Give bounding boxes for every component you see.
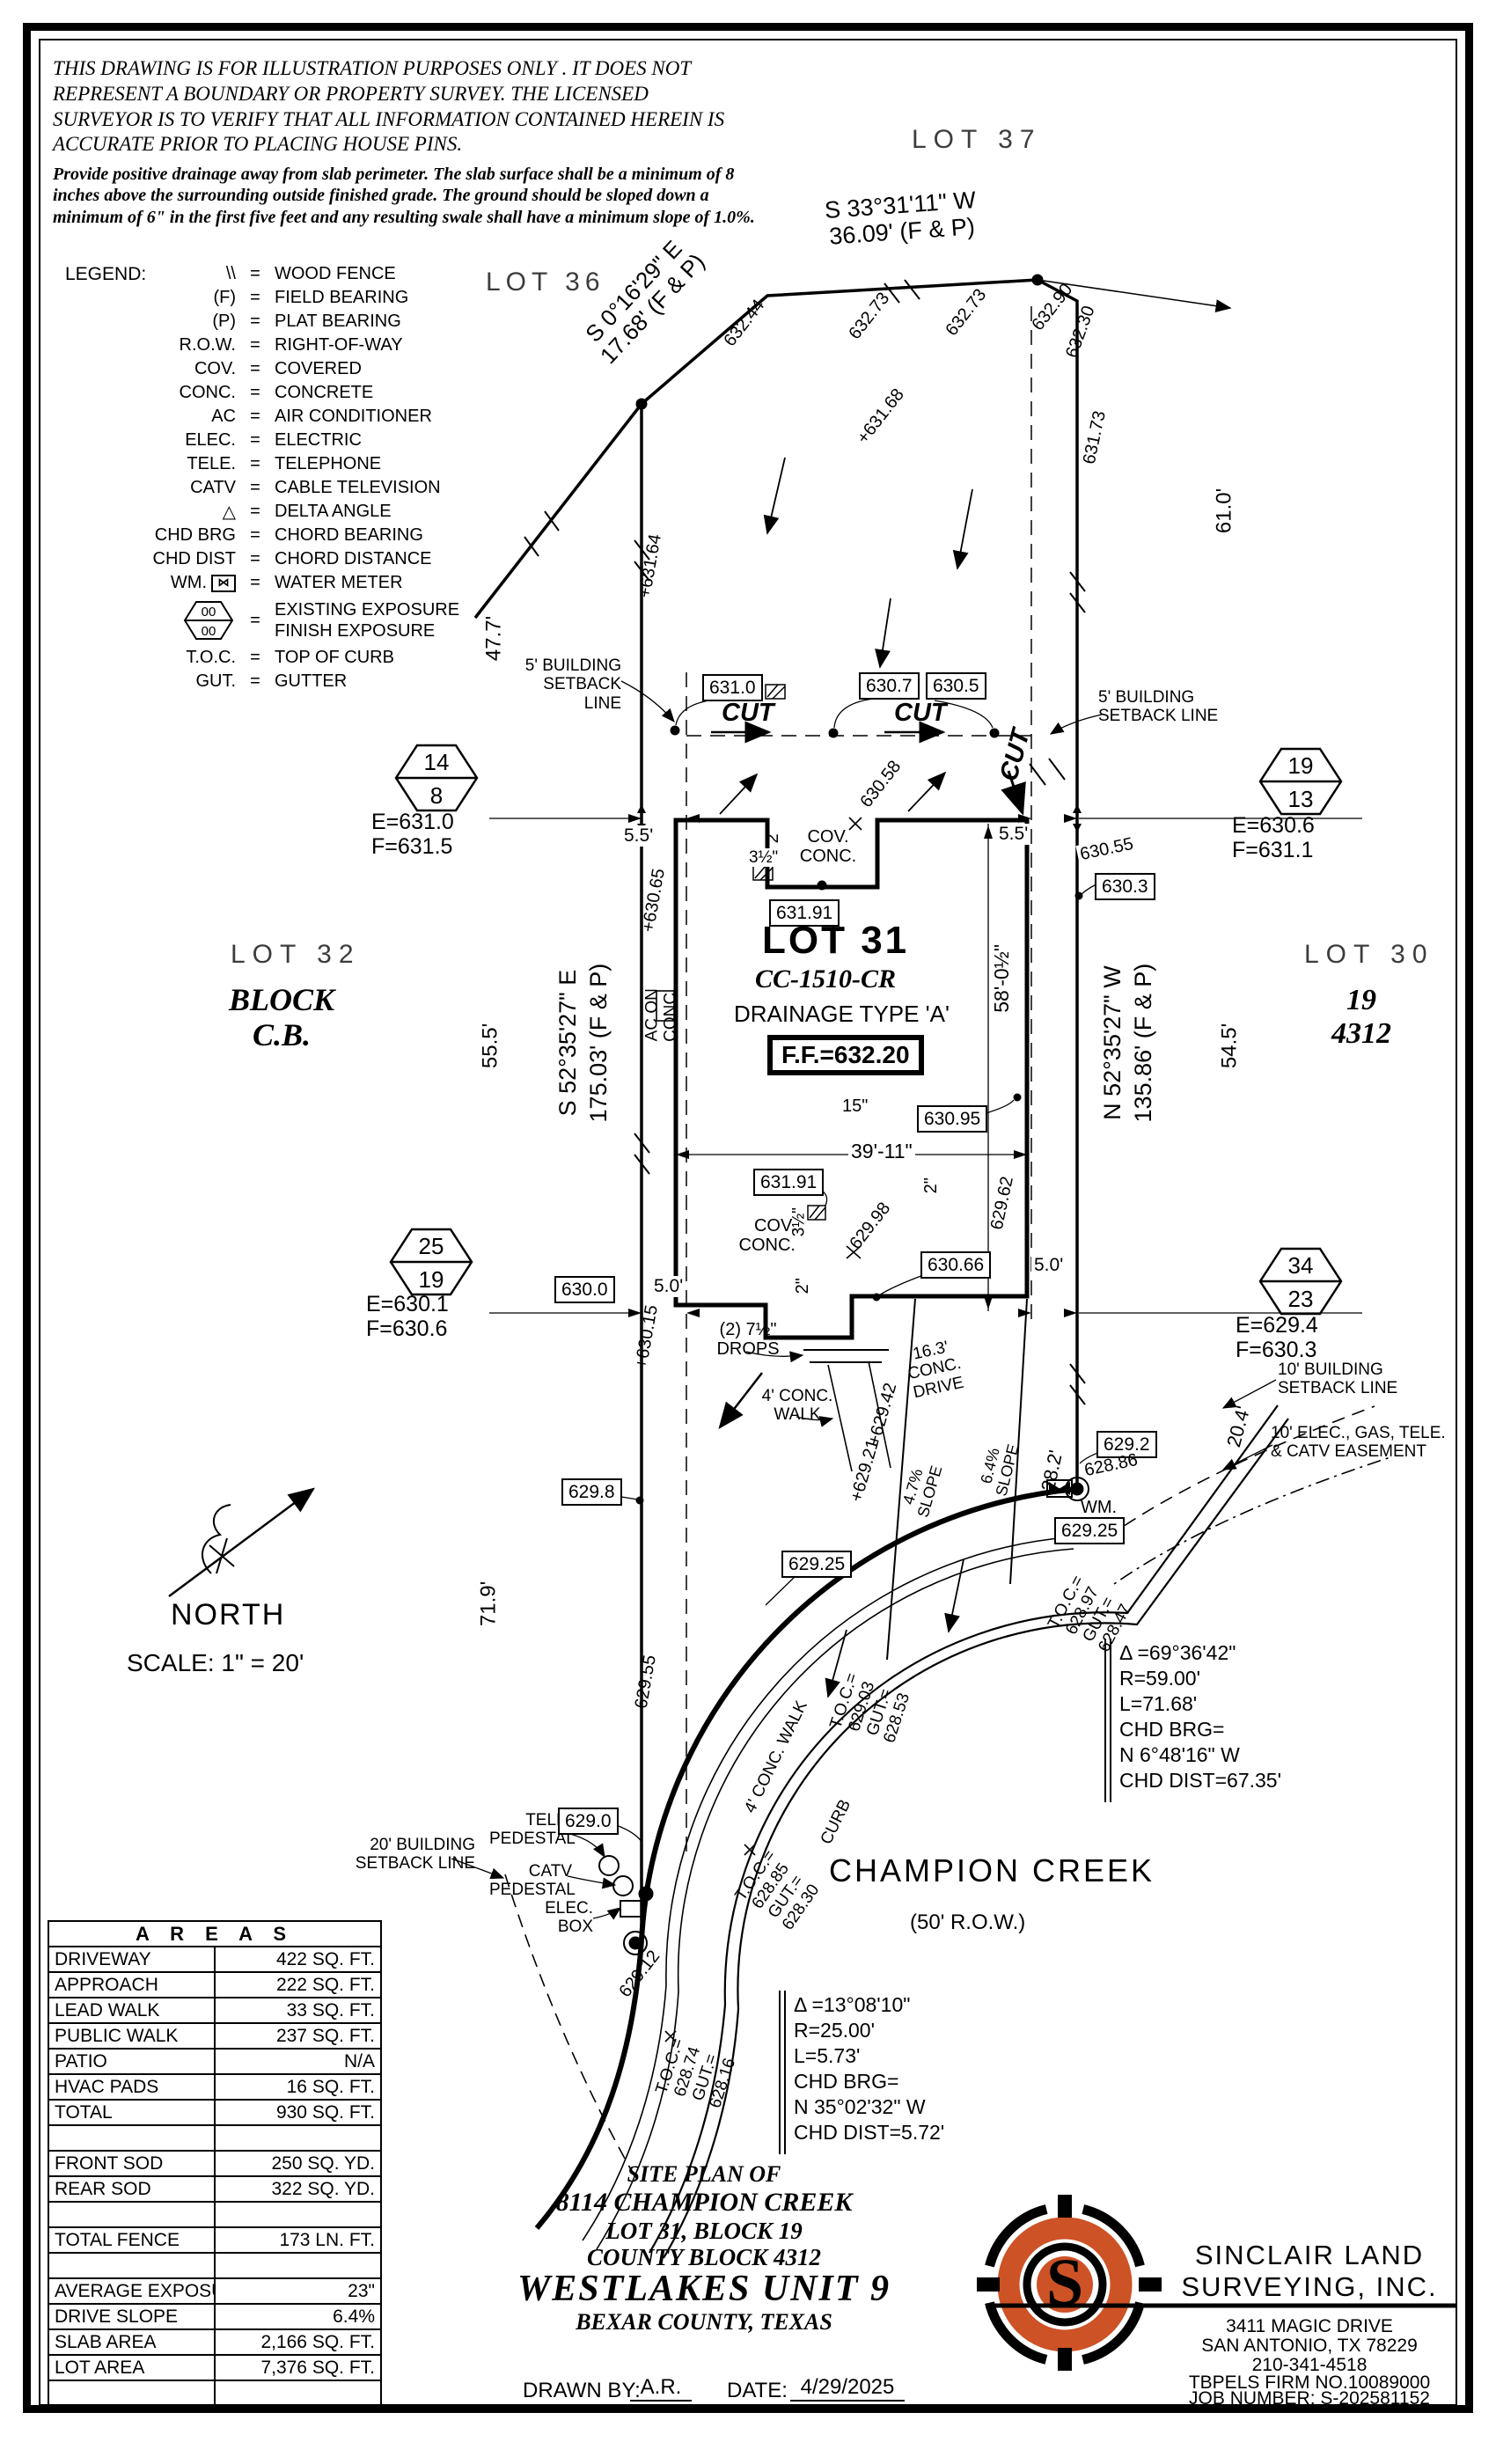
table-row: SLAB AREA2,166 SQ. FT. (48, 2329, 381, 2355)
table-row: TOTAL FENCE173 LN. FT. (48, 2227, 381, 2253)
elevation-631-91-b: 631.91 (753, 1169, 824, 1196)
dim-2in-right: 2" (921, 1159, 941, 1212)
hex1-existing: E=631.0 (371, 810, 454, 834)
title-line-3: LOT 31, BLOCK 19 (493, 2218, 915, 2244)
hex2-existing: E=630.6 (1232, 813, 1315, 838)
hex2-top: 19 (1280, 753, 1322, 779)
setback-5-label-right: 5' BUILDING SETBACK LINE (1098, 688, 1218, 726)
dim-5-5-right: 5.5' (996, 824, 1030, 845)
steps (803, 1350, 889, 1362)
conc-walk-house: 4' CONC. WALK (760, 1387, 834, 1425)
elevation-630-95: 630.95 (917, 1105, 987, 1133)
lot-30-block-label: 19 4312 (1304, 984, 1419, 1051)
company-name-2: SURVEYING, INC. (1158, 2272, 1461, 2303)
cut-label-1: CUT (722, 699, 774, 727)
legend-row: \\=WOOD FENCE (104, 262, 482, 286)
table-row (48, 2253, 381, 2278)
company-address-1: 3411 MAGIC DRIVE (1158, 2316, 1461, 2337)
dim-54-5: 54.5' (1219, 1001, 1243, 1089)
easement-arc (1114, 1457, 1390, 1584)
title-line-1: SITE PLAN OF (493, 2161, 915, 2187)
date-label: DATE: (727, 2380, 788, 2403)
ac-on-concrete: AC ON CONC. (643, 969, 681, 1060)
street-name: CHAMPION CREEK (829, 1853, 1155, 1888)
covered-concrete-bottom: COV. CONC. (727, 1216, 796, 1256)
dim-58-0: 58'-0½" (991, 906, 1014, 1052)
setback-10-label: 10' BUILDING SETBACK LINE (1278, 1360, 1397, 1398)
hex1-finish: F=631.5 (371, 834, 452, 859)
elevation-631-91-a: 631.91 (769, 899, 840, 927)
table-row: DRIVE SLOPE6.4% (48, 2304, 381, 2329)
legend-row: CHD DIST=CHORD DISTANCE (104, 547, 482, 571)
legend-row: GUT.=GUTTER (104, 670, 482, 693)
title-line-6: BEXAR COUNTY, TEXAS (493, 2309, 915, 2335)
catv-pedestal-symbol (613, 1876, 633, 1896)
svg-text:00: 00 (202, 624, 216, 639)
hex4-top: 34 (1280, 1253, 1322, 1279)
areas-table: A R E A S DRIVEWAY422 SQ. FT. APPROACH22… (48, 1920, 382, 2407)
disclaimer-body: Provide positive drainage away from slab… (53, 164, 766, 228)
table-row: HVAC PADS16 SQ. FT. (48, 2074, 381, 2100)
site-plan-sheet: THIS DRAWING IS FOR ILLUSTRATION PURPOSE… (0, 0, 1496, 2464)
title-line-2: 8114 CHAMPION CREEK (493, 2188, 915, 2218)
dim-47-7: 47.7' (483, 594, 507, 682)
lot-30-label: LOT 30 (1304, 940, 1434, 970)
exposure-hexagon-icon: 00 00 (181, 598, 236, 643)
legend-row: COV.=COVERED (104, 357, 482, 381)
hex2-finish: F=631.1 (1232, 838, 1313, 862)
table-row (48, 2380, 381, 2406)
bearing-east-line: N 52°35'27" W 135.86' (F & P) (1097, 893, 1159, 1192)
drawn-by-label: DRAWN BY: (523, 2380, 641, 2403)
catv-pedestal-label: CATV PEDESTAL (489, 1862, 572, 1900)
hex3-finish: F=630.6 (366, 1316, 447, 1341)
wood-fence-icon: \\ (104, 264, 236, 284)
hex4-finish: F=630.3 (1236, 1338, 1316, 1362)
dim-55-5: 55.5' (480, 1001, 503, 1089)
legend-row: WM.⋈ =WATER METER (104, 571, 482, 595)
hex1-top: 14 (415, 750, 458, 775)
legend-row: CATV=CABLE TELEVISION (104, 476, 482, 500)
table-row: DRIVEWAY422 SQ. FT. (48, 1947, 381, 1972)
dim-5-0-right: 5.0' (1031, 1255, 1066, 1276)
table-row: FRONT SOD250 SQ. YD. (48, 2151, 381, 2176)
elevation-631-0: 631.0 (702, 674, 763, 701)
delta-icon: △ (104, 501, 236, 523)
block-cb-label: BLOCK C.B. (211, 982, 352, 1053)
company-job-number: JOB NUMBER: S-202581152 (1158, 2388, 1461, 2409)
curve-data-2: Δ =13°08'10" R=25.00' L=5.73' CHD BRG= N… (794, 1992, 944, 2145)
legend-row-exposure: 00 00 = EXISTING EXPOSURE FINISH EXPOSUR… (104, 595, 482, 646)
scale-label: SCALE: 1" = 20' (127, 1649, 304, 1676)
drainage-type-label: DRAINAGE TYPE 'A' (734, 1001, 950, 1027)
svg-text:00: 00 (202, 605, 216, 620)
dim-5-5-left: 5.5' (621, 825, 656, 847)
setback-20-label: 20' BUILDING SETBACK LINE (333, 1836, 475, 1874)
elec-box-label: ELEC. BOX (519, 1899, 593, 1937)
water-meter-icon: ⋈ (211, 575, 236, 592)
legend-row: △=DELTA ANGLE (104, 500, 482, 524)
elec-box-symbol (620, 1901, 642, 1917)
legend-row: T.O.C.=TOP OF CURB (104, 646, 482, 670)
dim-61-0: 61.0' (1214, 466, 1237, 554)
drawn-by-value: A.R. (630, 2376, 692, 2402)
lot-32-label: LOT 32 (231, 940, 361, 970)
finished-floor-elevation: F.F.=632.20 (767, 1035, 924, 1075)
drops-note: (2) 7½" DROPS (699, 1320, 797, 1360)
north-arrow (169, 1489, 313, 1596)
company-name-1: SINCLAIR LAND (1158, 2240, 1461, 2271)
date-value: 4/29/2025 (790, 2376, 905, 2402)
dim-3half-top: 3½" (746, 848, 781, 867)
table-row: PUBLIC WALK237 SQ. FT. (48, 2023, 381, 2049)
elevation-630-0: 630.0 (554, 1276, 615, 1303)
legend-row: CHD BRG=CHORD BEARING (104, 524, 482, 547)
title-line-5: WESTLAKES UNIT 9 (493, 2269, 915, 2310)
elevation-630-5: 630.5 (926, 672, 986, 700)
hex4-existing: E=629.4 (1236, 1313, 1318, 1338)
street-row: (50' R.O.W.) (910, 1911, 1025, 1935)
hex1-bottom: 8 (415, 783, 458, 809)
legend-row: R.O.W.=RIGHT-OF-WAY (104, 334, 482, 357)
dim-39-11: 39'-11" (848, 1140, 915, 1163)
dim-2in-mid: 2" (793, 1259, 812, 1312)
legend-row: CONC.=CONCRETE (104, 381, 482, 405)
fence-line-nw (475, 404, 642, 618)
covered-concrete-top: COV. CONC. (796, 827, 861, 867)
hex2-bottom: 13 (1280, 787, 1322, 812)
logo-letter: S (1037, 2246, 1093, 2321)
elevation-630-7: 630.7 (859, 672, 920, 700)
elevation-629-0: 629.0 (558, 1808, 619, 1835)
tele-pedestal-symbol (599, 1856, 619, 1875)
table-row: PATION/A (48, 2049, 381, 2074)
hex3-top: 25 (410, 1234, 452, 1259)
boundary-right (1038, 280, 1077, 1489)
elevation-630-66: 630.66 (920, 1251, 991, 1279)
table-row: REAR SOD322 SQ. YD. (48, 2176, 381, 2202)
legend-row: TELE.=TELEPHONE (104, 452, 482, 476)
table-row: APPROACH222 SQ. FT. (48, 1972, 381, 1998)
table-row: TOTAL930 SQ. FT. (48, 2100, 381, 2125)
lot-31-id: CC-1510-CR (755, 964, 896, 994)
elevation-629-25-a: 629.25 (1054, 1517, 1125, 1544)
table-row (48, 2125, 381, 2151)
hex3-existing: E=630.1 (366, 1292, 449, 1316)
legend-row: AC=AIR CONDITIONER (104, 405, 482, 429)
curve-data-1: Δ =69°36'42" R=59.00' L=71.68' CHD BRG= … (1119, 1640, 1281, 1793)
easement-label: 10' ELEC., GAS, TELE. & CATV EASEMENT (1271, 1424, 1446, 1462)
cut-label-2: CUT (894, 699, 947, 727)
elevation-630-3: 630.3 (1095, 873, 1155, 900)
north-label: NORTH (171, 1598, 285, 1632)
table-row: LOT AREA7,376 SQ. FT. (48, 2355, 381, 2380)
wm-label: WM. (1081, 1498, 1117, 1517)
hex4-bottom: 23 (1280, 1287, 1322, 1312)
table-row (48, 2202, 381, 2227)
legend-row: (P)=PLAT BEARING (104, 310, 482, 334)
table-row: LEAD WALK33 SQ. FT. (48, 1998, 381, 2023)
legend-row: (F)=FIELD BEARING (104, 286, 482, 310)
lot-36-label: LOT 36 (486, 268, 605, 297)
dim-71-9: 71.9' (478, 1559, 502, 1647)
disclaimer-heading: THIS DRAWING IS FOR ILLUSTRATION PURPOSE… (53, 56, 730, 158)
hex3-bottom: 19 (410, 1267, 452, 1293)
legend-row: ELEC.=ELECTRIC (104, 429, 482, 452)
title-line-4: COUNTY BLOCK 4312 (493, 2244, 915, 2270)
elevation-629-25-b: 629.25 (781, 1551, 852, 1578)
elevation-629-8: 629.8 (561, 1478, 622, 1506)
lot-37-label: LOT 37 (912, 125, 1042, 155)
legend: \\=WOOD FENCE (F)=FIELD BEARING (P)=PLAT… (104, 262, 482, 693)
setback-5-label-left: 5' BUILDING SETBACK LINE (516, 656, 621, 713)
table-row: AVERAGE EXPOSURE23" (48, 2278, 381, 2304)
bearing-west-line: S 52°35'27" E 175.03' (F & P) (553, 893, 614, 1192)
dim-15in: 15" (840, 1096, 870, 1116)
areas-title: A R E A S (48, 1921, 381, 1947)
company-address-2: SAN ANTONIO, TX 78229 (1158, 2336, 1461, 2357)
